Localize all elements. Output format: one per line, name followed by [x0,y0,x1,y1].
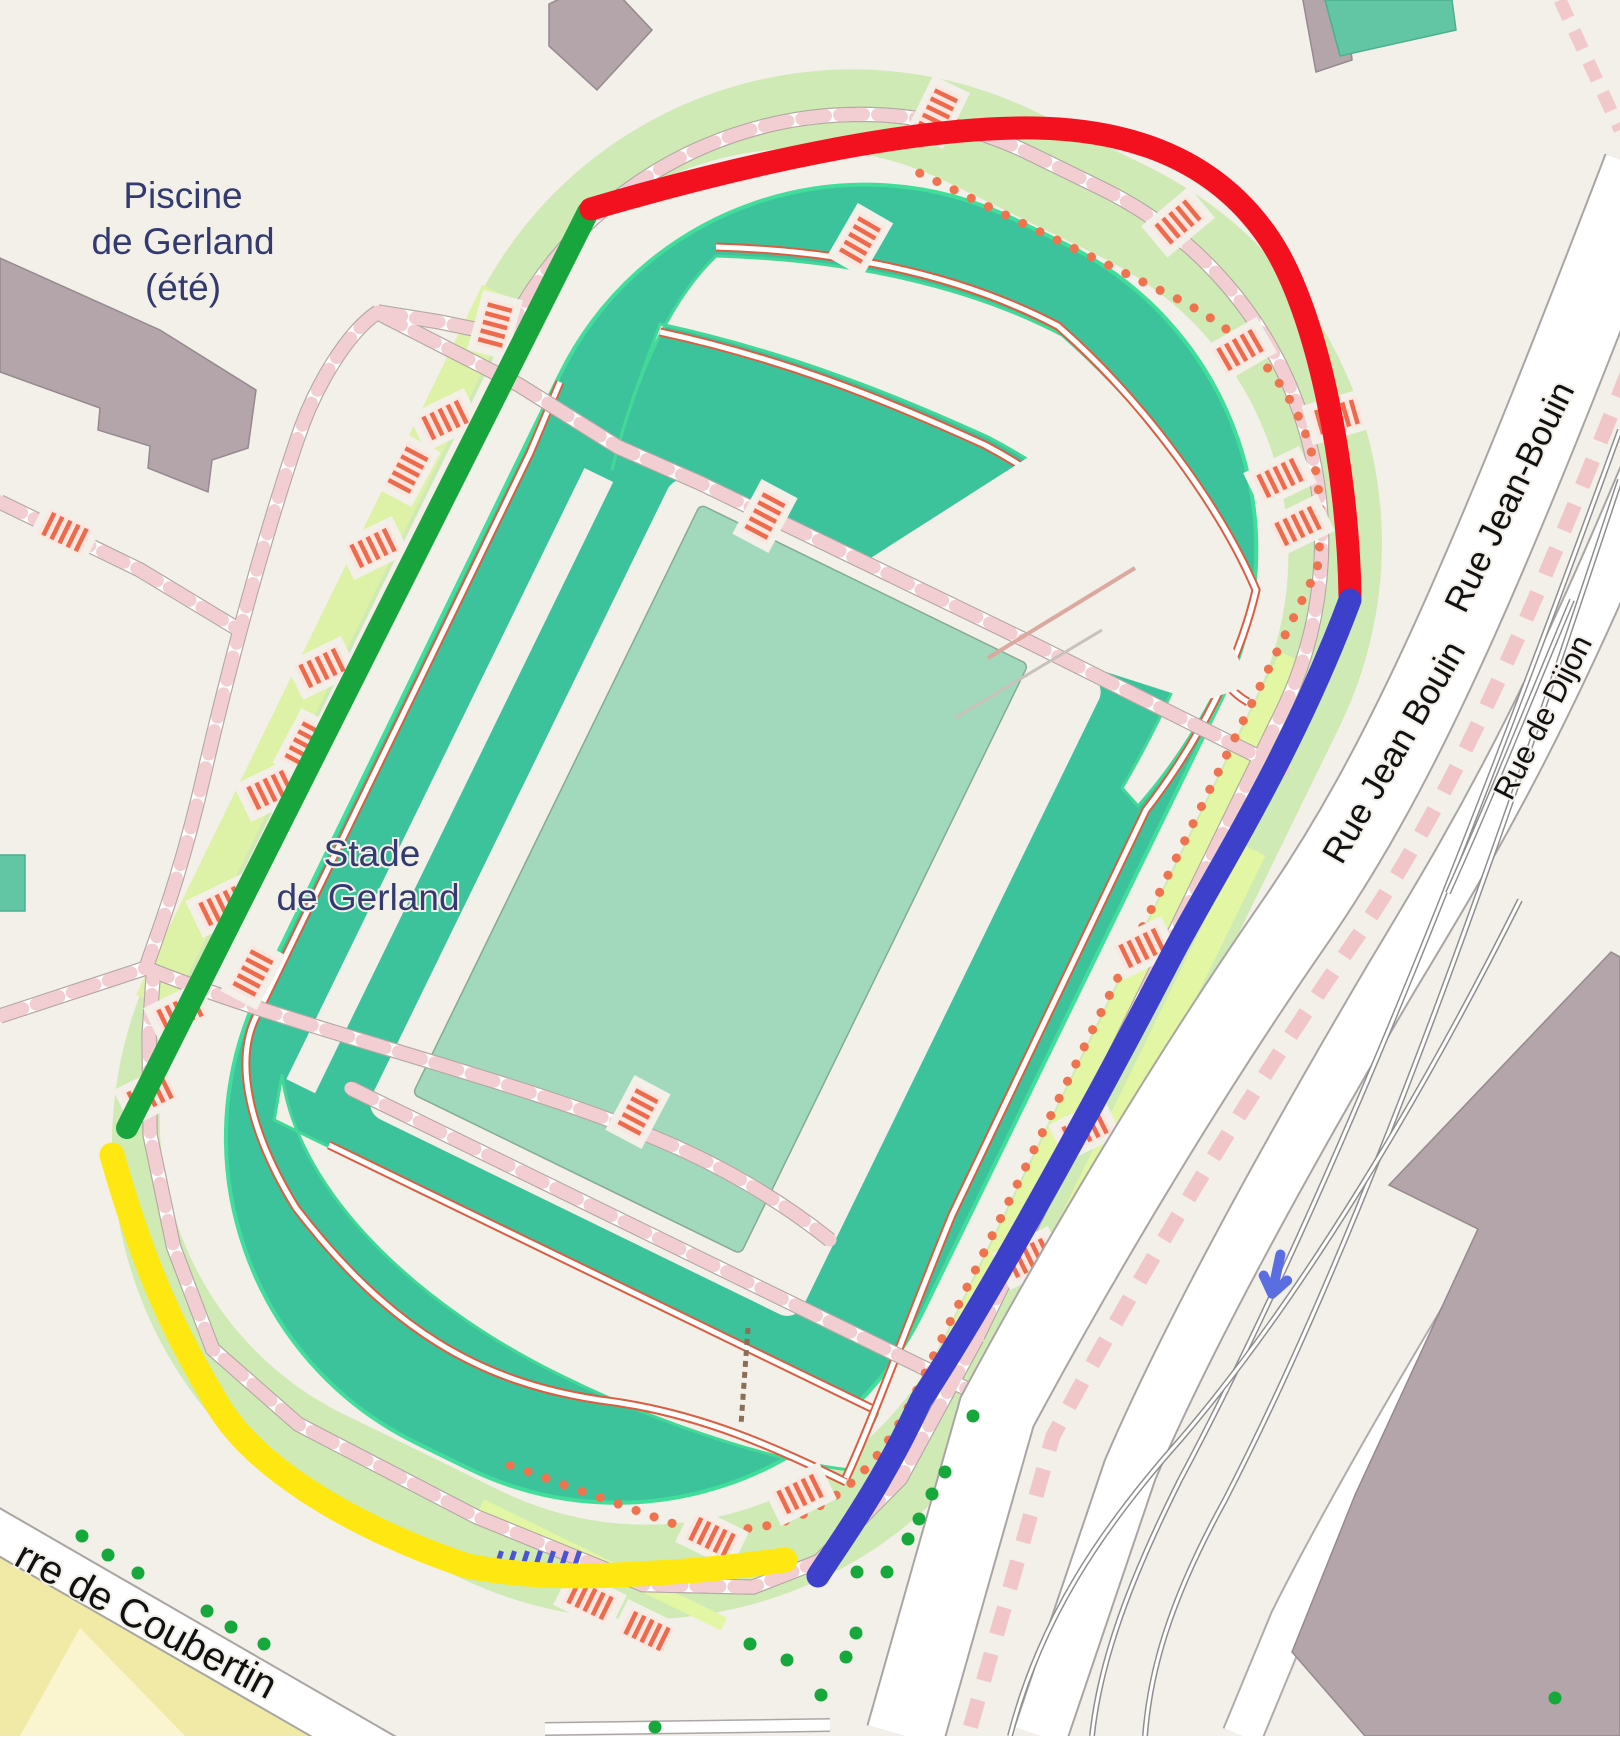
svg-text:de Gerland: de Gerland [276,877,459,918]
svg-text:Stade: Stade [324,833,421,874]
svg-text:de Gerland: de Gerland [91,221,274,262]
svg-text:(été): (été) [145,267,221,308]
svg-text:Piscine: Piscine [123,175,242,216]
